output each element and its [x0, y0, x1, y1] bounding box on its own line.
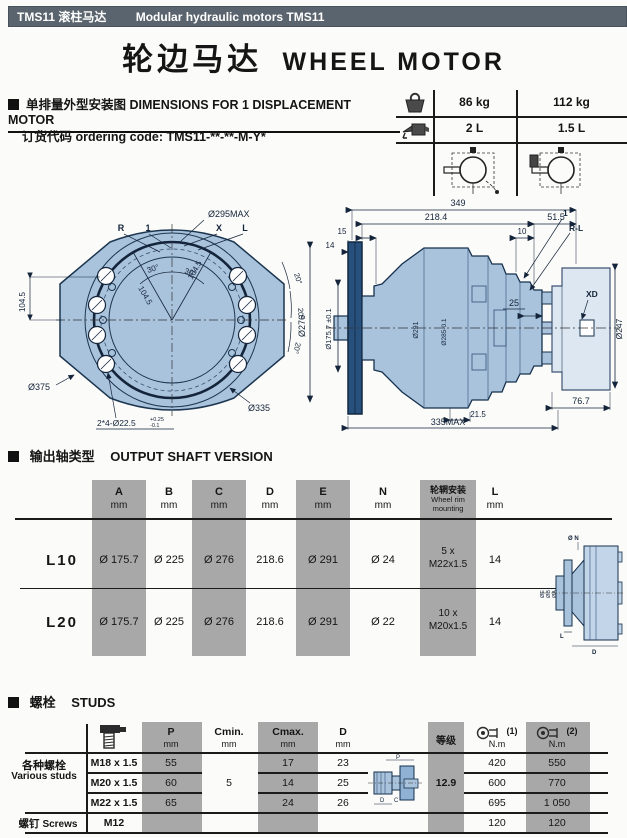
group-screws: 螺钉 Screws [10, 816, 86, 831]
dim-15: 15 [338, 227, 347, 236]
col-unit-a: mm [111, 500, 128, 511]
row-label-l20: L20 [46, 614, 78, 631]
t2-m18: 550 [548, 757, 566, 769]
head-d: D [339, 726, 347, 738]
head-cmin-unit: mm [222, 739, 237, 749]
col-header-rim-sub2: mounting [433, 504, 464, 513]
dim-21: 21.5 [470, 410, 486, 419]
l20-rim1: 10 x [439, 608, 458, 619]
t1-m22: 695 [488, 797, 506, 809]
head-cmax-unit: mm [281, 739, 296, 749]
row-label-l10: L10 [46, 552, 78, 569]
head-t2-unit: N.m [549, 739, 566, 749]
oil-jug-icon [399, 118, 431, 141]
l10-l: 14 [489, 554, 501, 566]
dim-276: Ø276 [297, 315, 307, 337]
side-view-drawing: 349 218.4 51.5 10 15 14 1 R-L XD [318, 190, 627, 436]
t2-m22: 1 050 [544, 797, 570, 809]
col-header-d: D [266, 486, 274, 498]
dim-holes: 2*4-Ø22.5 [97, 418, 136, 428]
dim-76: 76.7 [572, 396, 590, 406]
l10-d: 218.6 [256, 554, 284, 566]
dim-291: Ø291 [413, 321, 420, 338]
t2-m12: 120 [548, 817, 566, 829]
mini-dim-l: L [560, 634, 564, 640]
dim-285: Ø285-0.1 [441, 318, 448, 345]
port-schematic-1 [442, 147, 506, 195]
t1-m12: 120 [488, 817, 506, 829]
group-screws-cn: 螺钉 [19, 818, 40, 830]
p-m18: 55 [165, 757, 177, 769]
section-marker [8, 99, 19, 110]
section-shaft-heading-en: OUTPUT SHAFT VERSION [110, 449, 273, 464]
dim-25: 25 [509, 298, 519, 308]
col-header-b: B [165, 486, 173, 498]
mini-dim-n: Ø N [568, 536, 579, 542]
col-unit-c: mm [211, 500, 228, 511]
stud-icon [92, 724, 128, 750]
l10-n: Ø 24 [371, 554, 395, 566]
mini-dim-d: D [592, 650, 597, 656]
xd-label: XD [586, 289, 598, 299]
section-shaft-heading-cn: 输出轴类型 [30, 449, 95, 464]
head-cmax: Cmax. [272, 726, 304, 738]
front-view-drawing: 30° 30° 104.5 104.5 104.5 R 1 X L Ø295MA… [4, 192, 316, 434]
dim-335: Ø335 [248, 403, 270, 413]
l20-e: Ø 291 [308, 616, 338, 628]
l20-rim2: M20x1.5 [429, 621, 467, 632]
p-m20: 60 [165, 777, 177, 789]
l20-c: Ø 276 [204, 616, 234, 628]
col-header-n: N [379, 486, 387, 498]
l20-d: 218.6 [256, 616, 284, 628]
header-series-label: Modular hydraulic motors TMS11 [136, 10, 325, 24]
t2-m20: 770 [548, 777, 566, 789]
section-shaft-heading: 输出轴类型 OUTPUT SHAFT VERSION [8, 446, 273, 465]
group-screws-en: Screws [42, 819, 77, 830]
cmax-m18: 17 [282, 757, 294, 769]
weight-value-2: 112 kg [516, 95, 627, 109]
dim-335max: 335MAX [431, 417, 466, 427]
section-studs-heading: 螺栓 STUDS [8, 692, 115, 711]
group-various-studs-en: Various studs [11, 771, 77, 782]
l20-a: Ø 175.7 [99, 616, 138, 628]
section-marker [8, 697, 19, 708]
mini-dim-a: ØA [552, 590, 558, 598]
stud-size-m18: M18 x 1.5 [91, 757, 138, 769]
l10-e: Ø 291 [308, 554, 338, 566]
l20-n: Ø 22 [371, 616, 395, 628]
port-label-l: L [242, 223, 248, 233]
col-unit-l: mm [487, 500, 504, 511]
page-title-en: WHEEL MOTOR [283, 48, 505, 76]
col-unit-e: mm [315, 500, 332, 511]
d-m20: 25 [337, 777, 349, 789]
head-d-unit: mm [336, 739, 351, 749]
col-unit-b: mm [161, 500, 178, 511]
weight-value-1: 86 kg [433, 95, 516, 109]
page-header-bar: TMS11 滚柱马达 Modular hydraulic motors TMS1… [8, 6, 627, 27]
cmax-m22: 24 [282, 797, 294, 809]
screw-size-m12: M12 [104, 817, 124, 829]
section-dimensions-heading-text: 单排量外型安装图 DIMENSIONS FOR 1 DISPLACEMENT M… [8, 98, 351, 127]
l10-rim1: 5 x [441, 546, 454, 557]
port-label-1: 1 [145, 223, 150, 233]
col-header-rim-sub1: Wheel rim [431, 495, 465, 504]
dim-175: Ø175.7 ±0.1 [324, 308, 333, 349]
stud-dim-c: C [394, 798, 399, 804]
head-cmin: Cmin. [214, 726, 243, 738]
dim-20-c: 20° [291, 342, 302, 355]
shaft-mini-drawing: Ø N ØE ØB ØA L D [538, 532, 626, 656]
l20-l: 14 [489, 616, 501, 628]
col-header-a: A [115, 486, 123, 498]
stud-dim-p: P [396, 755, 400, 761]
col-header-c: C [215, 486, 223, 498]
stud-dim-d: D [380, 798, 385, 804]
spec-table: 86 kg 112 kg 2 L 1.5 L [396, 90, 627, 196]
page-title-cn: 轮边马达 [122, 42, 262, 77]
l10-a: Ø 175.7 [99, 554, 138, 566]
section-studs-heading-en: STUDS [71, 695, 115, 710]
head-t2: (2) [567, 726, 578, 736]
col-unit-d: mm [262, 500, 279, 511]
dim-pilot: Ø295MAX [208, 209, 250, 219]
head-p-unit: mm [164, 739, 179, 749]
lead-label-1: 1 [563, 208, 568, 218]
studs-table: P mm Cmin. mm Cmax. mm D mm 等级 (1) N.m (… [0, 720, 627, 838]
t1-m20: 600 [488, 777, 506, 789]
dim-218: 218.4 [425, 212, 448, 222]
head-grade: 等级 [436, 732, 456, 747]
section-marker [8, 451, 19, 462]
l10-c: Ø 276 [204, 554, 234, 566]
port-schematic-2 [526, 147, 590, 195]
l10-rim2: M22x1.5 [429, 559, 467, 570]
dim-holes-tol-dn: -0.1 [150, 423, 159, 429]
oil-value-1: 2 L [433, 121, 516, 135]
oil-value-2: 1.5 L [516, 121, 627, 135]
l10-b: Ø 225 [154, 554, 184, 566]
head-t1: (1) [507, 726, 518, 736]
l20-b: Ø 225 [154, 616, 184, 628]
col-header-l: L [492, 486, 499, 498]
header-model-label: TMS11 滚柱马达 [17, 10, 106, 24]
col-header-e: E [319, 486, 326, 498]
output-shaft-table: A mm B mm C mm D mm E mm N mm 轮辋安装 Wheel… [0, 478, 627, 658]
head-t1-unit: N.m [489, 739, 506, 749]
stud-size-m22: M22 x 1.5 [91, 797, 138, 809]
cmin-value: 5 [226, 777, 232, 789]
port-label-r: R [118, 223, 125, 233]
page-title: 轮边马达 WHEEL MOTOR [0, 34, 627, 79]
cmax-m20: 14 [282, 777, 294, 789]
port-label-x: X [216, 223, 222, 233]
weight-icon [401, 92, 429, 114]
dim-375-leader [56, 375, 74, 385]
stud-size-m20: M20 x 1.5 [91, 777, 138, 789]
stud-mini-drawing: P D C [366, 754, 426, 810]
ordering-code: 订货代码 ordering code: TMS11-**-**-M-Y* [22, 126, 266, 145]
d-m22: 26 [337, 797, 349, 809]
dim-104-left: 104.5 [18, 291, 27, 312]
p-m22: 65 [165, 797, 177, 809]
t1-m18: 420 [488, 757, 506, 769]
dim-14: 14 [326, 241, 335, 250]
dim-247: Ø247 [614, 318, 624, 339]
col-unit-n: mm [375, 500, 392, 511]
dim-20-a: 20° [292, 272, 304, 286]
d-m18: 23 [337, 757, 349, 769]
section-studs-heading-cn: 螺栓 [30, 695, 56, 710]
dim-10: 10 [518, 227, 527, 236]
dim-375: Ø375 [28, 382, 50, 392]
dim-349: 349 [450, 198, 465, 208]
lead-label-rl: R-L [569, 223, 583, 233]
grade-value: 12.9 [436, 777, 456, 789]
head-p: P [167, 726, 174, 738]
